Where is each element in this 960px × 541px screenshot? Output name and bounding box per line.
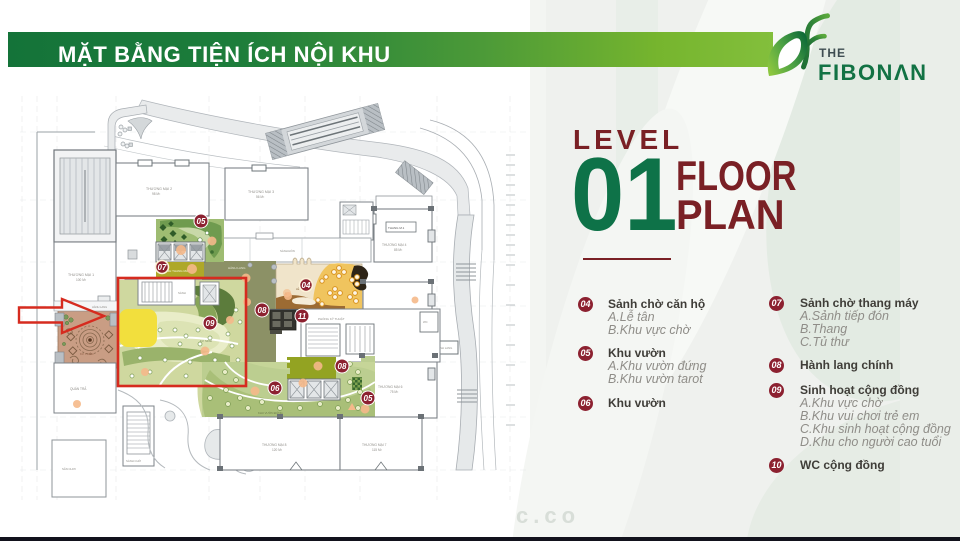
svg-text:75 M²: 75 M² [390,390,398,394]
svg-text:05: 05 [197,217,206,226]
svg-text:06: 06 [271,384,280,393]
svg-text:QUÁN TRẤ: QUÁN TRẤ [70,387,87,391]
svg-text:THƯƠNG MẠI 3: THƯƠNG MẠI 3 [248,190,274,194]
svg-text:05: 05 [364,394,373,403]
svg-text:KV. THIỀN: KV. THIỀN [80,351,93,356]
svg-text:11: 11 [298,312,307,321]
svg-text:100 M²: 100 M² [76,278,86,282]
svg-text:SẢNH CHỜ: SẢNH CHỜ [126,458,142,463]
svg-text:07: 07 [158,263,167,272]
svg-text:04: 04 [302,281,311,290]
svg-text:WC: WC [423,320,428,324]
svg-text:THƯƠNG MẠI 4: THƯƠNG MẠI 4 [382,243,407,247]
svg-text:HÀNH LANG: HÀNH LANG [228,266,246,270]
svg-text:08: 08 [258,306,267,315]
svg-text:115 M²: 115 M² [372,448,382,452]
svg-text:PHÒNG KỸ THUẬT: PHÒNG KỸ THUẬT [318,316,345,321]
svg-text:SẢNH ĐÓN: SẢNH ĐÓN [280,248,295,253]
svg-text:THƯƠNG MẠI 8: THƯƠNG MẠI 8 [262,443,287,447]
svg-text:SÂN CHƠI: SÂN CHƠI [62,466,76,471]
svg-text:HÀNH LANG: HÀNH LANG [92,305,107,309]
svg-text:85 M²: 85 M² [394,248,402,252]
svg-text:THANG M.1: THANG M.1 [388,226,405,230]
svg-text:56 M²: 56 M² [256,195,264,199]
svg-text:98 M²: 98 M² [152,192,160,196]
svg-text:THƯƠNG MẠI 6: THƯƠNG MẠI 6 [378,385,403,389]
svg-text:09: 09 [206,319,215,328]
svg-text:SẢNH: SẢNH [178,290,186,295]
svg-text:120 M²: 120 M² [272,448,282,452]
svg-text:THƯƠNG MẠI 7: THƯƠNG MẠI 7 [362,443,387,447]
svg-text:08: 08 [338,362,347,371]
svg-text:THƯƠNG MẠI 1: THƯƠNG MẠI 1 [68,273,94,277]
svg-text:KV. SINH: KV. SINH [200,339,212,343]
svg-text:THƯƠNG MẠI 2: THƯƠNG MẠI 2 [146,187,172,191]
